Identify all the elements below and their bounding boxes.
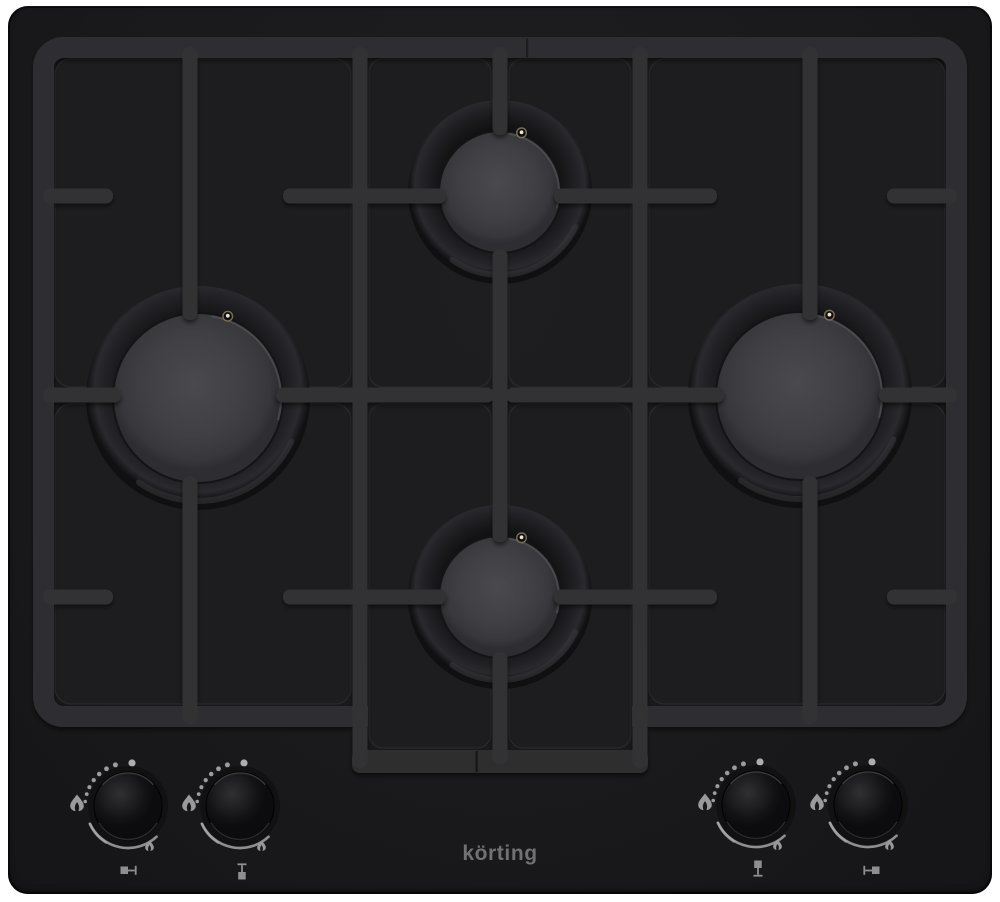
grate-center-bottom-rail: [352, 750, 648, 773]
knob-burner-front-center[interactable]: [180, 746, 300, 866]
burner-position-icon-front: [232, 860, 252, 880]
min-flame-icon: [885, 839, 894, 850]
off-position-dot: [240, 759, 247, 766]
max-flame-icon: [182, 795, 196, 812]
controls-layer: körting: [0, 0, 1000, 902]
burner-position-icon-rear: [748, 860, 768, 880]
burner-front-center: [392, 489, 608, 705]
off-position-dot: [868, 758, 875, 765]
burner-cap-highlight: [510, 539, 559, 612]
grate-bars: [43, 47, 957, 768]
burner-ring-highlight: [452, 227, 575, 275]
burner-ring-highlight: [741, 440, 893, 499]
max-flame-icon: [810, 794, 824, 811]
burner-ring: [408, 100, 592, 284]
burner-rear-center: [392, 84, 608, 300]
min-flame-icon: [773, 839, 782, 850]
burner-left: [70, 270, 326, 526]
burner-cap: [439, 131, 561, 253]
knob-body: [94, 772, 162, 840]
cooktop-glass-surface: körting: [8, 6, 992, 894]
off-position-dot: [128, 759, 135, 766]
knob-burner-left[interactable]: [68, 746, 188, 866]
burner-cap-highlight: [212, 316, 281, 419]
knob-burner-rear-center[interactable]: [696, 745, 816, 865]
knob-body: [722, 771, 790, 839]
power-arc: [718, 823, 785, 847]
burner-position-icon-left: [120, 860, 140, 880]
burner-cap: [113, 313, 283, 483]
ignition-electrode: [517, 533, 527, 543]
knob-body: [834, 771, 902, 839]
burner-position-icon-right: [860, 860, 880, 880]
burner-ring: [86, 286, 310, 510]
off-position-dot: [756, 758, 763, 765]
power-arc: [202, 824, 269, 848]
burner-ring-highlight: [139, 442, 291, 501]
max-flame-icon: [698, 794, 712, 811]
knob-body: [206, 772, 274, 840]
burner-cap-highlight: [814, 315, 882, 417]
min-flame-icon: [257, 840, 266, 851]
knob-burner-right[interactable]: [808, 745, 928, 865]
ignition-electrode: [517, 128, 527, 138]
pan-support-grate: [0, 0, 1000, 902]
burner-ring-highlight: [452, 632, 575, 680]
burner-cap: [439, 536, 561, 658]
burner-cap: [716, 312, 884, 480]
min-flame-icon: [145, 840, 154, 851]
power-arc: [90, 824, 157, 848]
grate-seam-top: [526, 39, 528, 58]
burner-cap-highlight: [510, 134, 559, 207]
knob-markings: [70, 759, 156, 850]
knob-markings: [698, 758, 784, 849]
grate-window-panels: [0, 0, 1000, 902]
knob-markings: [182, 759, 268, 850]
brand-logo: körting: [0, 842, 1000, 866]
power-arc: [830, 823, 897, 847]
ignition-electrode: [223, 311, 233, 321]
photo-background: körting: [0, 0, 1000, 902]
knob-markings: [810, 758, 896, 849]
max-flame-icon: [70, 795, 84, 812]
grate-seam-bottom: [476, 751, 478, 772]
grate-frame: [44, 48, 957, 717]
burners-layer: [0, 0, 1000, 902]
burner-ring: [688, 284, 912, 508]
burner-right: [672, 268, 928, 524]
ignition-electrode: [825, 310, 835, 320]
burner-ring: [408, 505, 592, 689]
